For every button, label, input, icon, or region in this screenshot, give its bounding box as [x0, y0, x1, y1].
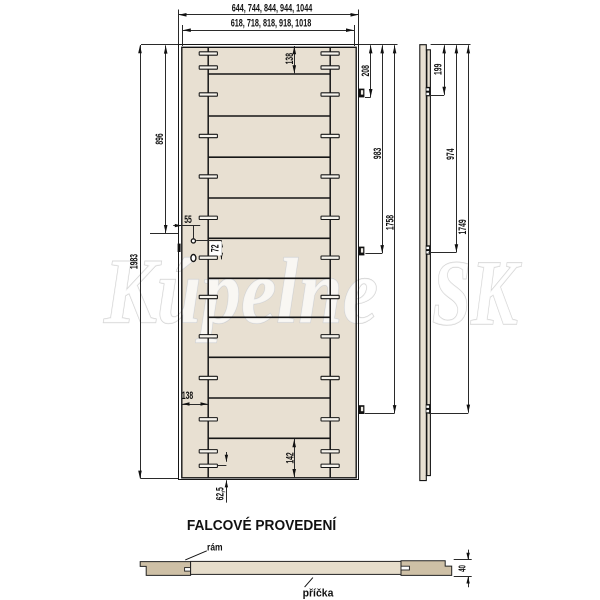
- svg-text:1758: 1758: [384, 215, 396, 230]
- svg-text:138: 138: [283, 53, 295, 64]
- svg-text:40: 40: [456, 565, 468, 572]
- svg-text:FALCOVÉ PROVEDENÍ: FALCOVÉ PROVEDENÍ: [187, 516, 337, 534]
- svg-text:199: 199: [432, 64, 444, 75]
- svg-text:SK: SK: [432, 242, 522, 345]
- svg-text:974: 974: [444, 148, 456, 160]
- svg-text:55: 55: [184, 213, 192, 225]
- svg-text:142: 142: [284, 452, 296, 463]
- svg-text:62,5: 62,5: [214, 487, 226, 500]
- svg-text:1983: 1983: [128, 254, 140, 269]
- svg-text:644, 744, 844, 944, 1044: 644, 744, 844, 944, 1044: [232, 2, 313, 14]
- svg-text:72: 72: [209, 245, 221, 253]
- svg-text:208: 208: [359, 65, 371, 76]
- svg-text:rám: rám: [207, 542, 223, 553]
- svg-text:618, 718, 818, 918, 1018: 618, 718, 818, 918, 1018: [231, 17, 312, 29]
- svg-text:příčka: příčka: [303, 587, 335, 599]
- svg-text:983: 983: [371, 148, 383, 159]
- svg-text:Kúpelne: Kúpelne: [103, 240, 378, 343]
- svg-text:896: 896: [154, 133, 166, 144]
- svg-text:1749: 1749: [456, 219, 468, 234]
- svg-text:138: 138: [182, 389, 193, 401]
